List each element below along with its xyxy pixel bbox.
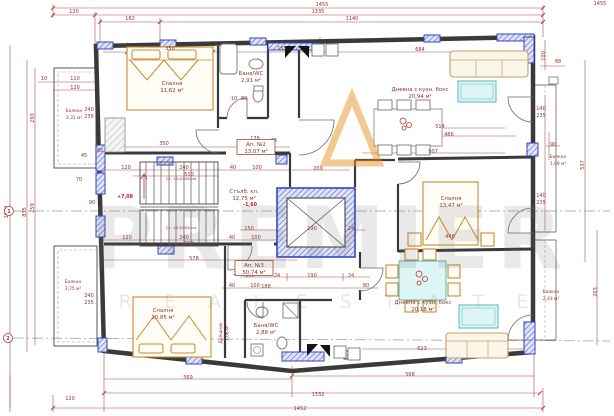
dimension-label: 1332 <box>312 392 325 398</box>
dimension-label: 100 <box>541 51 547 61</box>
dimension-label: 90 <box>550 142 556 148</box>
dimension-label: 85 <box>97 148 103 154</box>
wardrobe-top-left <box>105 118 125 152</box>
room-area: 20,94 м² <box>408 93 431 100</box>
dimension-label: 120 <box>70 85 80 91</box>
room-area: 1,09 м² <box>550 161 566 167</box>
axis-number: 1 <box>7 209 11 215</box>
dimension-label: 45 <box>81 153 87 159</box>
axis-number: 2 <box>6 336 10 342</box>
dimension-label: 537 <box>580 160 586 170</box>
toilet-icon <box>277 337 287 349</box>
dimension-label: 110 <box>70 76 80 82</box>
dimension-label: 514 <box>435 124 445 130</box>
dimension-label: 569 <box>183 375 193 381</box>
dimension-label: 182 <box>125 16 135 22</box>
room-name: Дрешник <box>218 322 224 344</box>
washbasin-icon <box>249 59 263 69</box>
room-area: 3,75 м² <box>65 286 81 292</box>
watermark-brand: PREMIER <box>90 189 570 289</box>
dimension-label: 70 <box>76 177 82 183</box>
floor-plan-page: 1455145512013351821140350155684104083529… <box>0 0 614 416</box>
dimension-label: 80 <box>241 96 247 102</box>
watermark-tagline: R E A L E S T A T E <box>119 291 541 313</box>
dimension-label: 140 <box>536 106 546 112</box>
room-name: Спалня <box>162 81 183 87</box>
dimension-label: 1455 <box>594 1 607 7</box>
dimension-label: 259 <box>30 203 36 213</box>
coffee-table-top-right <box>458 81 496 102</box>
dimension-label: 350 <box>165 46 175 52</box>
room-name: Баня/WC <box>254 323 279 329</box>
dimension-label: 684 <box>415 47 425 53</box>
room-name: Балкон <box>65 279 82 285</box>
dimension-label: 486 <box>444 132 454 138</box>
dimension-label: 1335 <box>312 9 325 15</box>
washing-machine-icon <box>251 344 263 356</box>
dimension-label: 240 <box>84 293 94 299</box>
room-area: 2,91 м² <box>241 77 261 84</box>
room-area: 2,43 м² <box>543 296 559 302</box>
dimension-label: 293 <box>30 113 36 123</box>
dimension-label: 623 <box>417 346 427 352</box>
dimension-label: 120 <box>69 9 79 15</box>
dimension-label: 240 <box>179 165 189 171</box>
room-area: 11,62 м² <box>160 87 183 94</box>
dimension-label: 120 <box>121 165 131 171</box>
dimension-label: 209 <box>313 166 323 172</box>
room-name: Баня/WC <box>239 71 264 77</box>
dimension-label: 235 <box>84 114 94 120</box>
dimension-label: 1455 <box>316 2 329 8</box>
sofa-bottom-right <box>446 333 508 358</box>
dimension-label: 1140 <box>346 16 359 22</box>
room-area: 3,31 м² <box>66 115 82 121</box>
dimension-label: 263 <box>593 287 599 297</box>
dimension-label: 40 <box>230 165 236 171</box>
dimension-label: 10 <box>231 96 237 102</box>
dimension-label: 100 <box>252 165 262 171</box>
room-area: 1,06 м² <box>225 325 231 341</box>
dimension-label: 507 <box>428 149 438 155</box>
dimension-label: 835 <box>22 207 28 217</box>
bathtub-icon <box>220 44 237 74</box>
room-area: 13,07 м² <box>244 148 267 155</box>
dimension-label: 120 <box>65 396 75 402</box>
room-name: Балкон <box>550 154 567 160</box>
dimension-label: 235 <box>84 300 94 306</box>
dimension-label: 155 <box>277 46 287 52</box>
dimension-label: 568 <box>405 372 415 378</box>
room-area: 10,85 м² <box>151 314 174 321</box>
dimension-label: 10 <box>41 76 47 82</box>
bed-top-left <box>127 47 213 110</box>
floor-plan-canvas: 1455145512013351821140350155684104083529… <box>0 0 614 416</box>
dimension-label: 350 <box>159 141 169 147</box>
room-name: Балкон <box>66 108 83 114</box>
dimension-label: 1452 <box>294 406 307 412</box>
sofa-top-right <box>450 51 528 77</box>
dimension-label: 88 <box>555 59 561 65</box>
room-area: 2,88 м² <box>256 329 276 336</box>
stair-note: Ст. 18.4/280 см <box>166 176 197 181</box>
room-name: Ап. №2 <box>246 142 266 148</box>
dimension-label: 235 <box>536 113 546 119</box>
room-name: Балкон <box>543 289 560 295</box>
dimension-label: 240 <box>84 107 94 113</box>
room-name: Дневна с кухн. бокс <box>392 87 449 93</box>
